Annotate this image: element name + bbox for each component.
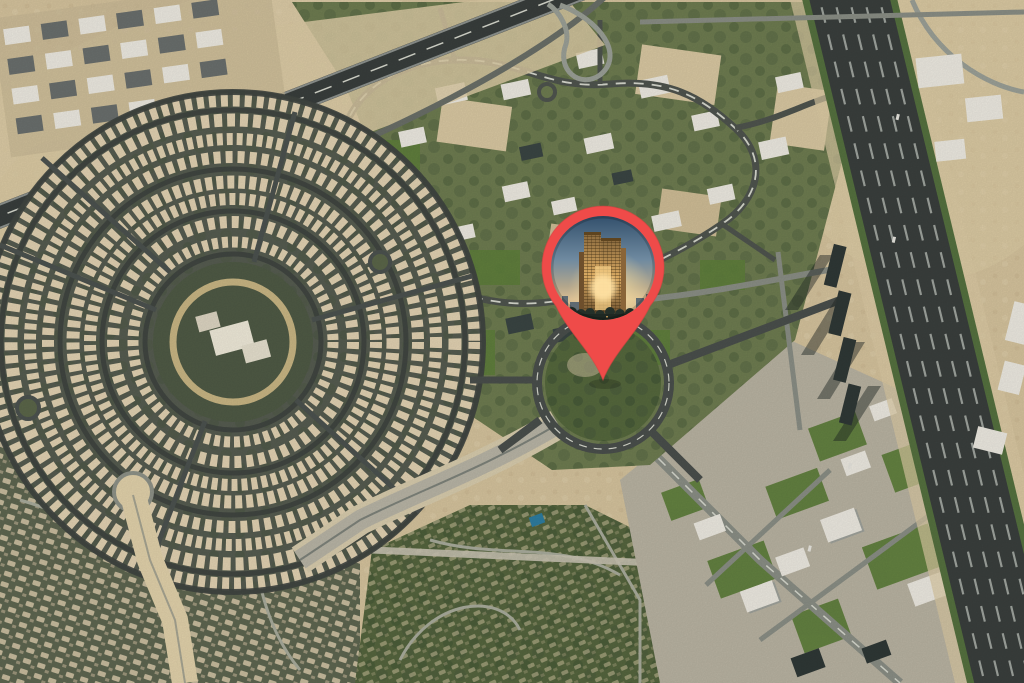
photo-tower (579, 232, 626, 316)
map-viewport[interactable] (0, 0, 1024, 683)
image-grain-overlay (0, 0, 1024, 683)
sun-glare (590, 275, 616, 301)
satellite-map[interactable] (0, 0, 1024, 683)
pin-shadow (589, 379, 621, 389)
